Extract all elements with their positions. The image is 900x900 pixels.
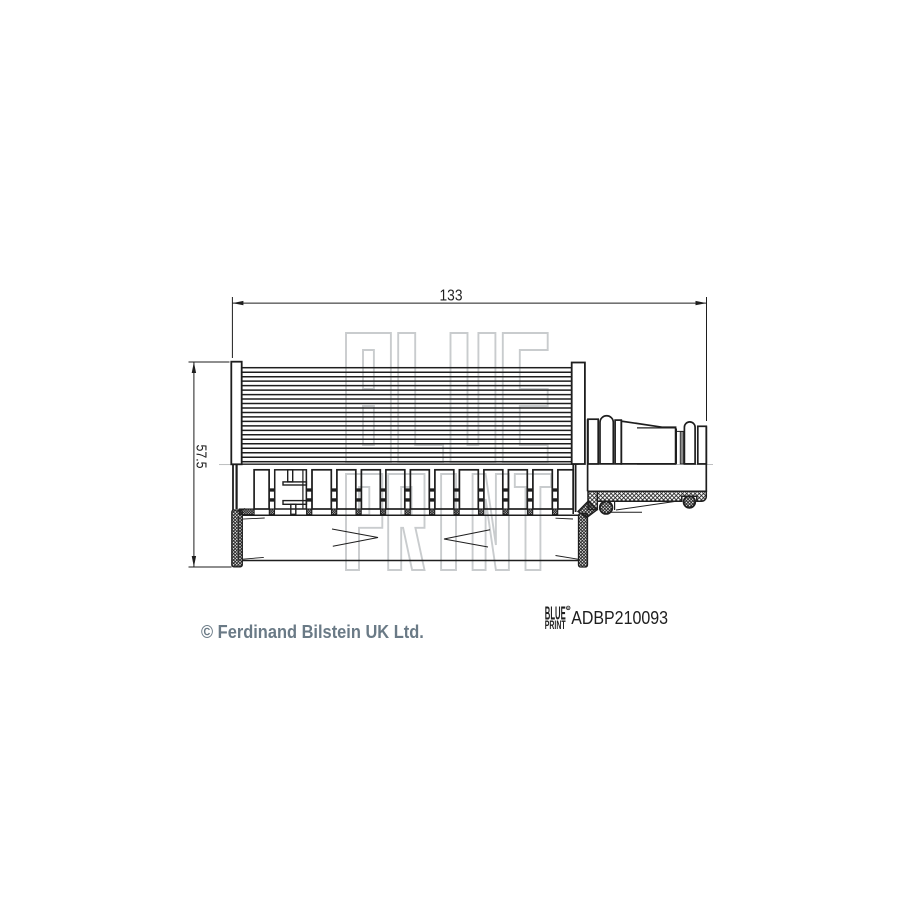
- svg-text:© Ferdinand Bilstein UK Ltd.: © Ferdinand Bilstein UK Ltd.: [201, 622, 424, 642]
- svg-text:PRINT: PRINT: [545, 618, 566, 632]
- svg-text:57.5: 57.5: [193, 445, 209, 469]
- svg-text:ADBP210093: ADBP210093: [571, 607, 668, 628]
- svg-text:133: 133: [440, 287, 463, 304]
